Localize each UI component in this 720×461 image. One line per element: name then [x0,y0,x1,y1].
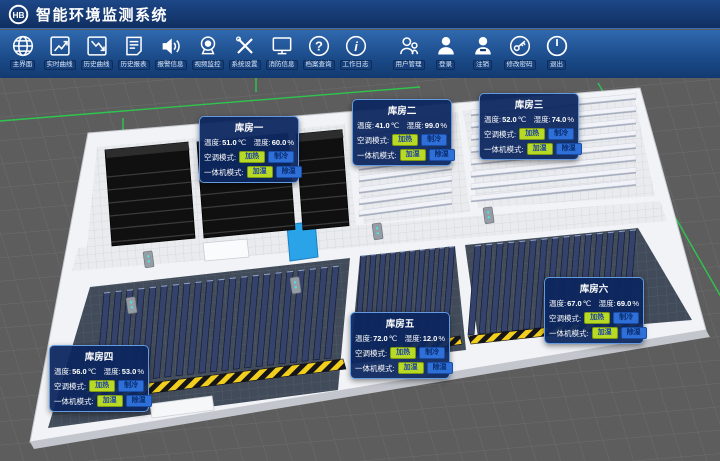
app-window: HB 智能环境监测系统 主界面 实时曲线 历史曲线 历史报表 报警信息 视频监控… [0,0,720,461]
toolbar-item-label: 实时曲线 [44,60,76,70]
toolbar-item-logout[interactable]: 注销 [464,33,501,70]
temp-hum-row: 温度:72.0℃ 湿度:12.0% [355,333,445,344]
user-icon [433,33,459,59]
speaker-icon [158,33,184,59]
dehumidify-button[interactable]: 除湿 [556,143,582,155]
ac-mode-label: 空调模式: [549,313,581,324]
svg-text:HB: HB [13,10,25,20]
humidify-button[interactable]: 加湿 [398,362,424,374]
dehumidify-button[interactable]: 除湿 [276,166,302,178]
toolbar-item-history-curve[interactable]: 历史曲线 [78,33,115,70]
cool-button[interactable]: 制冷 [118,380,144,392]
humidify-button[interactable]: 加湿 [400,149,426,161]
unit-mode-label: 一体机模式: [355,363,395,374]
toolbar-item-fire-info[interactable]: 消防信息 [263,33,300,70]
unit-mode-label: 一体机模式: [549,328,589,339]
toolbar-item-user-management[interactable]: 用户管理 [390,33,427,70]
question-icon [306,33,332,59]
unit-mode-label: 一体机模式: [357,150,397,161]
camera-icon [195,33,221,59]
toolbar-item-system-settings[interactable]: 系统设置 [226,33,263,70]
app-logo-icon: HB [8,4,29,25]
report-icon [121,33,147,59]
cool-button[interactable]: 制冷 [613,312,639,324]
humidify-button[interactable]: 加湿 [592,327,618,339]
unit-mode-label: 一体机模式: [484,144,524,155]
temp-hum-row: 温度:56.0℃ 湿度:53.0% [54,366,144,377]
unit-mode-label: 一体机模式: [54,396,94,407]
heat-button[interactable]: 加热 [89,380,115,392]
room-title: 库房一 [204,120,294,134]
toolbar-item-label: 报警信息 [155,60,187,70]
cool-button[interactable]: 制冷 [268,151,294,163]
ac-mode-label: 空调模式: [204,152,236,163]
room-title: 库房四 [54,349,144,363]
toolbar-item-video-monitor[interactable]: 视频监控 [189,33,226,70]
heat-button[interactable]: 加热 [390,347,416,359]
dehumidify-button[interactable]: 除湿 [427,362,453,374]
ac-mode-label: 空调模式: [484,129,516,140]
monitor-icon [269,33,295,59]
toolbar-item-label: 系统设置 [229,60,261,70]
toolbar-item-label: 历史报表 [118,60,150,70]
toolbar-item-label: 修改密码 [504,60,536,70]
toolbar-item-label: 登录 [436,60,455,70]
ac-mode-label: 空调模式: [355,348,387,359]
toolbar-item-label: 历史曲线 [81,60,113,70]
dehumidify-button[interactable]: 除湿 [429,149,455,161]
toolbar-item-login[interactable]: 登录 [427,33,464,70]
room-panel-4: 库房四 温度:56.0℃ 湿度:53.0% 空调模式:加热制冷 一体机模式:加湿… [49,345,149,412]
cool-button[interactable]: 制冷 [421,134,447,146]
info-icon [343,33,369,59]
room-panel-3: 库房三 温度:52.0℃ 湿度:74.0% 空调模式:加热制冷 一体机模式:加湿… [479,93,579,160]
room-title: 库房六 [549,281,639,295]
power-icon [544,33,570,59]
toolbar-item-label: 视频监控 [192,60,224,70]
temp-hum-row: 温度:67.0℃ 湿度:69.0% [549,298,639,309]
user-minus-icon [470,33,496,59]
heat-button[interactable]: 加热 [239,151,265,163]
room-panel-2: 库房二 温度:41.0℃ 湿度:99.0% 空调模式:加热制冷 一体机模式:加湿… [352,99,452,166]
unit-mode-label: 一体机模式: [204,167,244,178]
app-title: 智能环境监测系统 [36,4,168,25]
heat-button[interactable]: 加热 [584,312,610,324]
dehumidify-button[interactable]: 除湿 [621,327,647,339]
toolbar-item-work-log[interactable]: 工作日志 [337,33,374,70]
humidify-button[interactable]: 加湿 [247,166,273,178]
title-bar: HB 智能环境监测系统 [0,0,720,29]
dehumidify-button[interactable]: 除湿 [126,395,152,407]
temp-hum-row: 温度:51.0℃ 湿度:60.0% [204,137,294,148]
toolbar-item-label: 主界面 [10,60,36,70]
toolbar-item-alarm-info[interactable]: 报警信息 [152,33,189,70]
trend-down-icon [84,33,110,59]
toolbar-item-label: 消防信息 [266,60,298,70]
toolbar-item-label: 用户管理 [393,60,425,70]
toolbar-item-realtime-curve[interactable]: 实时曲线 [41,33,78,70]
users-icon [396,33,422,59]
white-cabinet [203,239,249,261]
key-icon [507,33,533,59]
toolbar-item-exit[interactable]: 退出 [538,33,575,70]
toolbar-item-change-password[interactable]: 修改密码 [501,33,538,70]
heat-button[interactable]: 加热 [519,128,545,140]
room-title: 库房五 [355,316,445,330]
heat-button[interactable]: 加热 [392,134,418,146]
trend-up-icon [47,33,73,59]
room-panel-1: 库房一 温度:51.0℃ 湿度:60.0% 空调模式:加热制冷 一体机模式:加湿… [199,116,299,183]
toolbar-item-history-report[interactable]: 历史报表 [115,33,152,70]
globe-icon [10,33,36,59]
temp-hum-row: 温度:41.0℃ 湿度:99.0% [357,120,447,131]
toolbar-item-label: 档案查询 [303,60,335,70]
humidify-button[interactable]: 加湿 [97,395,123,407]
humidify-button[interactable]: 加湿 [527,143,553,155]
room-title: 库房三 [484,97,574,111]
room-title: 库房二 [357,103,447,117]
toolbar-item-label: 工作日志 [340,60,372,70]
ac-mode-label: 空调模式: [54,381,86,392]
cool-button[interactable]: 制冷 [548,128,574,140]
tools-icon [232,33,258,59]
room-panel-6: 库房六 温度:67.0℃ 湿度:69.0% 空调模式:加热制冷 一体机模式:加湿… [544,277,644,344]
room-panel-5: 库房五 温度:72.0℃ 湿度:12.0% 空调模式:加热制冷 一体机模式:加湿… [350,312,450,379]
toolbar-item-archive-query[interactable]: 档案查询 [300,33,337,70]
main-toolbar: 主界面 实时曲线 历史曲线 历史报表 报警信息 视频监控 系统设置 消防信息 档… [0,30,720,78]
ac-mode-label: 空调模式: [357,135,389,146]
cool-button[interactable]: 制冷 [419,347,445,359]
toolbar-item-label: 注销 [473,60,492,70]
temp-hum-row: 温度:52.0℃ 湿度:74.0% [484,114,574,125]
toolbar-item-main[interactable]: 主界面 [4,33,41,70]
toolbar-item-label: 退出 [547,60,566,70]
